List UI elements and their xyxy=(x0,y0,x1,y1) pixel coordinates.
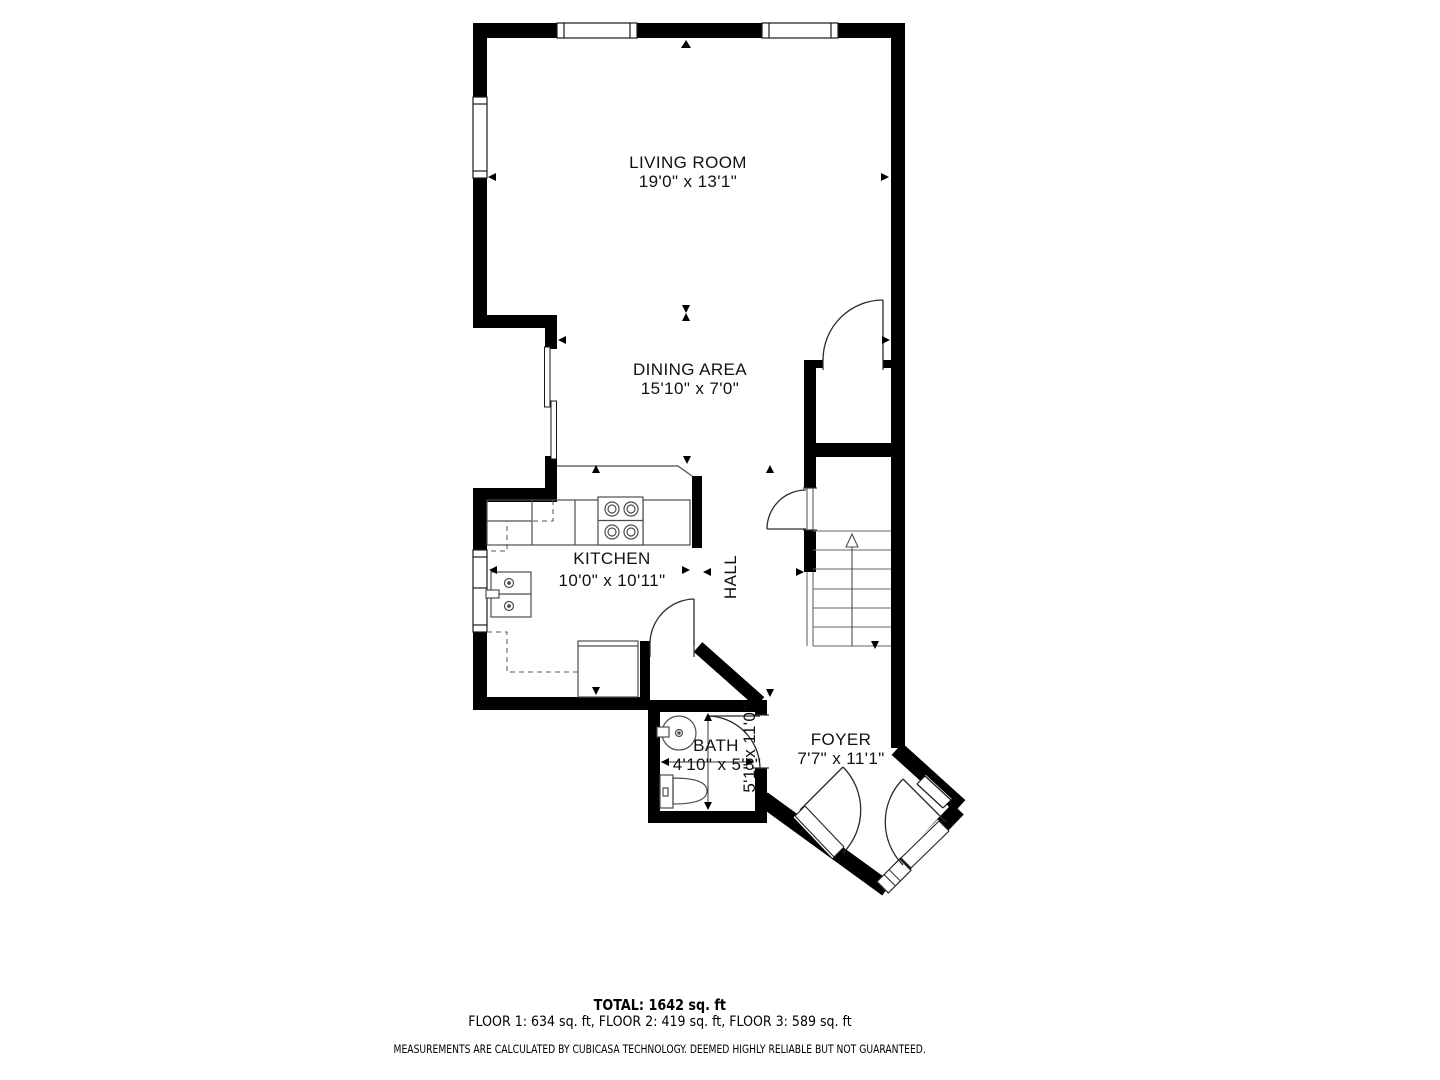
dim-label-hall: 5'1" x 11'0" xyxy=(740,705,759,792)
window-top-right xyxy=(762,23,838,38)
window-kitchen-left xyxy=(473,550,487,632)
counter-edge xyxy=(557,466,692,476)
dim-label-bath: 4'10" x 5'3" xyxy=(673,755,762,774)
door-kitchen xyxy=(650,599,694,645)
walls xyxy=(473,23,905,823)
door-closet-top xyxy=(823,300,883,360)
room-label-kitchen: KITCHEN xyxy=(573,549,650,568)
sliding-door xyxy=(545,347,557,459)
room-label-bath: BATH xyxy=(693,736,739,755)
door-hall-closet xyxy=(767,490,806,529)
window-top-left xyxy=(557,23,637,38)
staircase xyxy=(807,531,891,646)
dim-label-dining-area: 15'10" x 7'0" xyxy=(641,379,739,398)
floor-areas-text: FLOOR 1: 634 sq. ft, FLOOR 2: 419 sq. ft… xyxy=(468,1014,851,1030)
dim-label-living-room: 19'0" x 13'1" xyxy=(639,172,737,191)
counter-run xyxy=(487,500,690,545)
stairs-up-arrow xyxy=(846,534,858,646)
dim-label-foyer: 7'7" x 11'1" xyxy=(797,749,884,768)
total-area-text: TOTAL: 1642 sq. ft xyxy=(594,996,726,1014)
room-label-dining-area: DINING AREA xyxy=(633,360,747,379)
floor-plan: LIVING ROOM 19'0" x 13'1" DINING AREA 15… xyxy=(0,0,1440,1080)
dishwasher-counter xyxy=(578,641,638,697)
toilet xyxy=(660,775,707,808)
room-label-hall: HALL xyxy=(721,555,740,599)
kitchen-sink xyxy=(486,572,531,617)
room-label-foyer: FOYER xyxy=(811,730,872,749)
bathroom-sink xyxy=(657,716,696,750)
window-living-left xyxy=(473,97,487,178)
dim-label-kitchen: 10'0" x 10'11" xyxy=(558,571,665,590)
stove xyxy=(598,497,643,545)
disclaimer-text: MEASUREMENTS ARE CALCULATED BY CUBICASA … xyxy=(394,1042,926,1056)
room-label-living-room: LIVING ROOM xyxy=(629,153,747,172)
floor-plan-page: LIVING ROOM 19'0" x 13'1" DINING AREA 15… xyxy=(0,0,1440,1080)
